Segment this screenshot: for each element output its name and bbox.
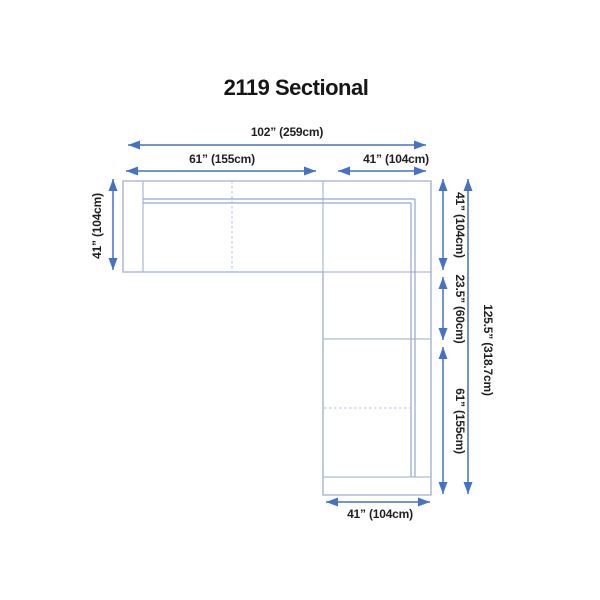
dimension-right-total: 125.5” (318.7cm): [468, 179, 495, 494]
dimension-top-right: 41” (104cm): [338, 152, 429, 171]
dimension-top-total: 102” (259cm): [128, 125, 426, 145]
dimension-right-middle: 23.5” (60cm): [443, 275, 467, 344]
sofa-outline: [123, 181, 431, 495]
dimension-top-right-label: 41” (104cm): [363, 152, 429, 166]
dimension-right-total-label: 125.5” (318.7cm): [481, 304, 495, 396]
page-title: 2119 Sectional: [224, 75, 369, 100]
dimension-annotations: 102” (259cm) 61” (155cm) 41” (104cm) 41”…: [90, 125, 495, 521]
dimension-left-side-label: 41” (104cm): [90, 193, 104, 259]
dimension-left-side: 41” (104cm): [90, 179, 113, 270]
dimension-bottom: 41” (104cm): [326, 502, 430, 521]
dimension-right-upper: 41” (104cm): [443, 179, 467, 270]
dimension-right-lower: 61” (155cm): [443, 347, 467, 494]
dimension-right-lower-label: 61” (155cm): [453, 388, 467, 454]
dimension-top-left-label: 61” (155cm): [189, 152, 255, 166]
dimension-right-upper-label: 41” (104cm): [453, 192, 467, 258]
dimension-top-total-label: 102” (259cm): [251, 125, 324, 139]
dimension-right-middle-label: 23.5” (60cm): [453, 275, 467, 344]
dimension-bottom-label: 41” (104cm): [347, 507, 413, 521]
sectional-dimension-diagram: 2119 Sectional 102” (259cm) 61” (155cm): [0, 0, 600, 600]
sofa-top-view: [123, 181, 431, 495]
dimension-top-left: 61” (155cm): [126, 152, 316, 171]
backrest-band: [143, 199, 415, 477]
